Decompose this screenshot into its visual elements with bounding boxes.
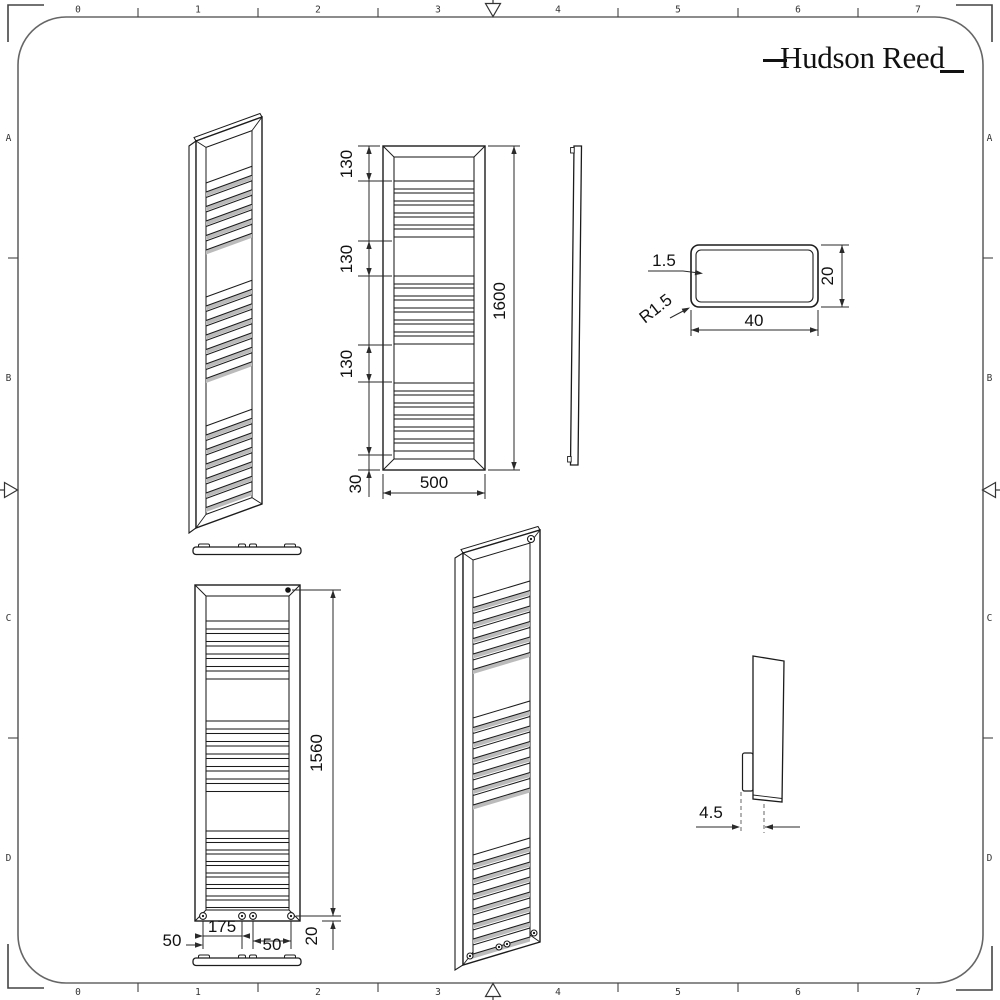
tube-inner-wall (696, 250, 813, 302)
brand-logo: Hudson Reed (763, 40, 964, 76)
dim-rear-1560: 1560 (307, 734, 326, 772)
dim-rear-175: 175 (208, 917, 236, 936)
ruler-top-5: 5 (675, 5, 681, 16)
logo-text: Hudson Reed (780, 40, 945, 76)
ruler-bottom-3: 3 (435, 987, 441, 998)
ruler-top-1: 1 (195, 5, 201, 16)
view-front-elevation (383, 146, 485, 470)
dim-section-40: 40 (745, 311, 764, 330)
dim-front-500: 500 (420, 473, 448, 492)
dim-front-1600: 1600 (490, 282, 509, 320)
ruler-left-a: A (6, 133, 12, 144)
ruler-bottom-6: 6 (795, 987, 801, 998)
ruler-right-b: B (987, 373, 993, 384)
ruler-bottom-0: 0 (75, 987, 81, 998)
dim-front-130-low: 130 (337, 350, 356, 378)
dim-section-20: 20 (818, 267, 837, 286)
ruler-top-0: 0 (75, 5, 81, 16)
wall-bracket (743, 753, 754, 791)
drawing-sheet: 0 1 2 3 4 5 6 7 0 1 2 3 4 5 6 7 A B C D … (0, 0, 1000, 1000)
side-panel (753, 656, 784, 802)
technical-drawing: 0 1 2 3 4 5 6 7 0 1 2 3 4 5 6 7 A B C D … (0, 0, 1000, 1000)
dim-front-130-top: 130 (337, 150, 356, 178)
ruler-left-c: C (6, 613, 12, 624)
ruler-bottom-4: 4 (555, 987, 561, 998)
ruler-top-3: 3 (435, 5, 441, 16)
ruler-top-4: 4 (555, 5, 561, 16)
ruler-bottom-1: 1 (195, 987, 201, 998)
logo-underscore-icon (940, 70, 964, 73)
ruler-right-c: C (987, 613, 993, 624)
dim-rear-50-right: 50 (263, 935, 282, 954)
ruler-left-d: D (6, 853, 12, 864)
dim-rear-50-left: 50 (163, 931, 182, 950)
ruler-right-d: D (987, 853, 993, 864)
ruler-left-b: B (6, 373, 12, 384)
dim-rear-20: 20 (302, 927, 321, 946)
ruler-bottom-2: 2 (315, 987, 321, 998)
ruler-top-7: 7 (915, 5, 921, 16)
ruler-right-a: A (987, 133, 993, 144)
view-perspective-rear (455, 527, 540, 971)
ruler-top-6: 6 (795, 5, 801, 16)
ruler-top-2: 2 (315, 5, 321, 16)
ruler-bottom-5: 5 (675, 987, 681, 998)
side-profile-notch-bottom (568, 457, 572, 463)
view-tube-section (691, 245, 818, 307)
dim-front-30: 30 (346, 475, 365, 494)
side-profile-notch-top (571, 148, 575, 154)
dim-section-wall-1-5: 1.5 (652, 251, 676, 270)
view-perspective-front (189, 114, 262, 534)
dim-side-4-5: 4.5 (699, 803, 723, 822)
dim-front-130-mid: 130 (337, 245, 356, 273)
ruler-bottom-7: 7 (915, 987, 921, 998)
view-rear-elevation (195, 585, 300, 921)
